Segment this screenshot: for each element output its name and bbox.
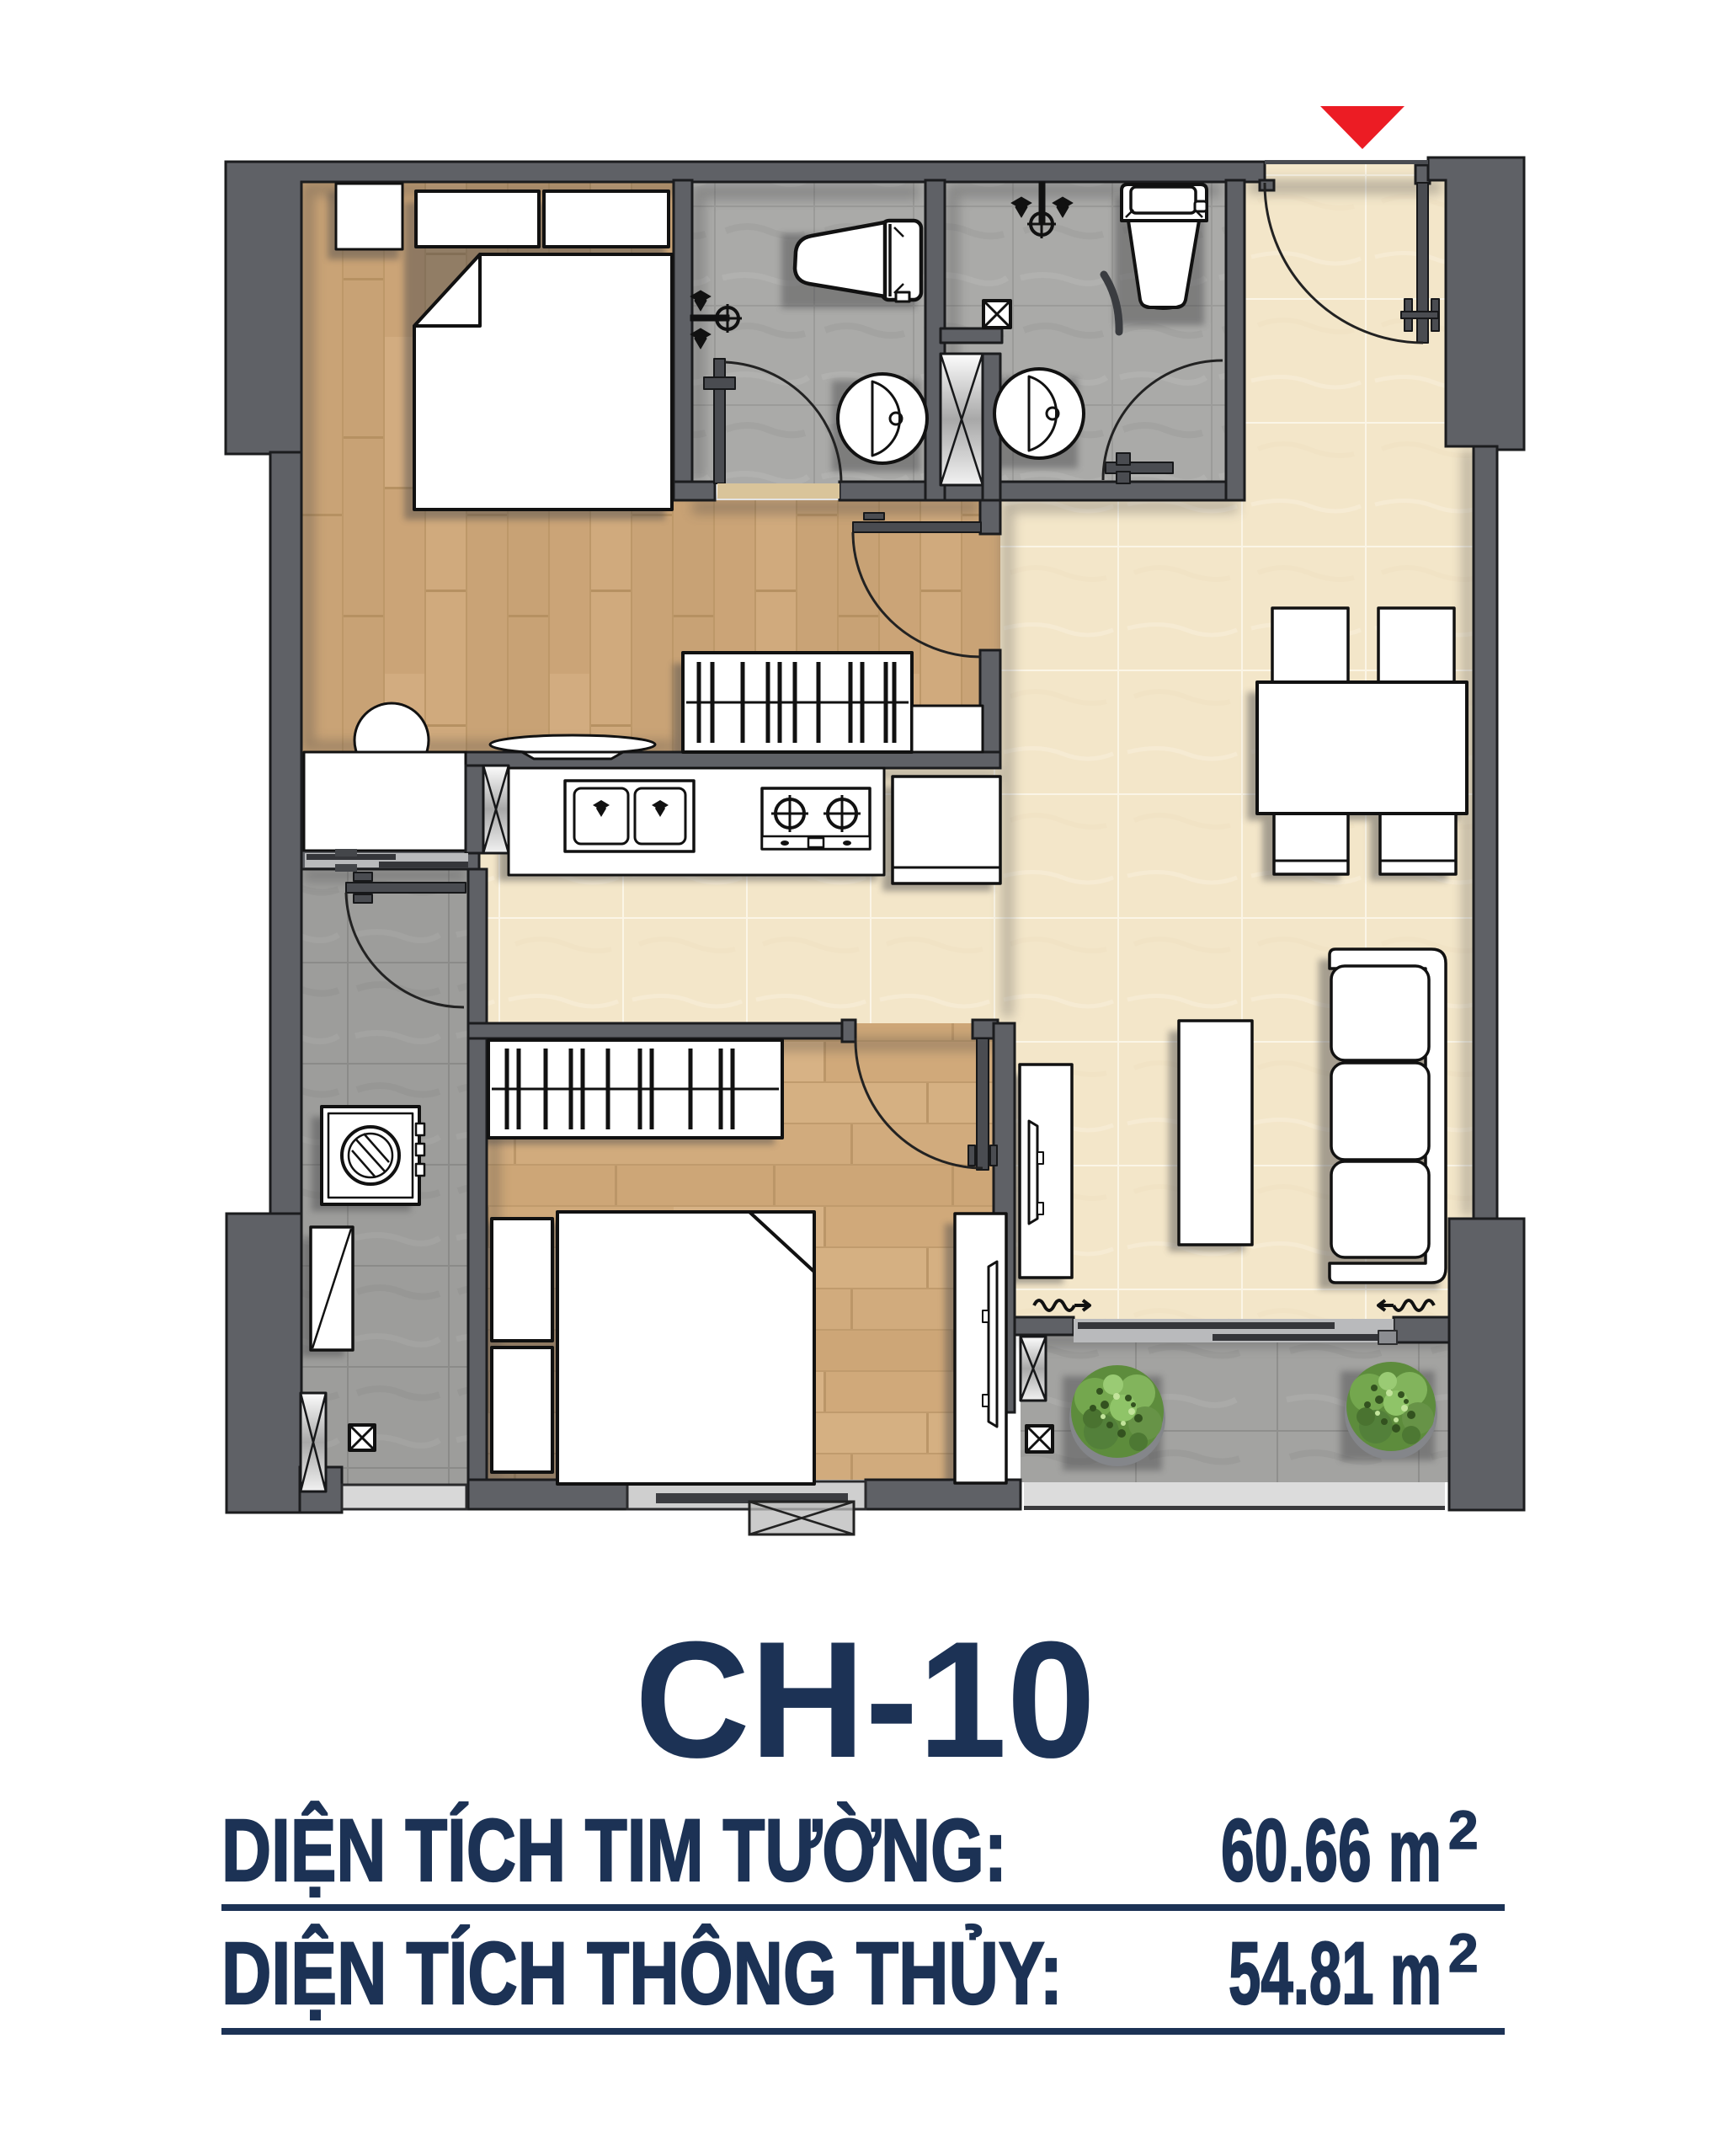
svg-text:54.81 m: 54.81 m [1229, 1924, 1442, 2023]
svg-text:DIỆN TÍCH TIM TƯỜNG:: DIỆN TÍCH TIM TƯỜNG: [221, 1801, 1007, 1900]
svg-text:60.66 m: 60.66 m [1221, 1801, 1442, 1900]
svg-text:DIỆN TÍCH THÔNG THỦY:: DIỆN TÍCH THÔNG THỦY: [221, 1924, 1063, 2023]
svg-text:2: 2 [1448, 1800, 1479, 1860]
svg-text:CH-10: CH-10 [635, 1607, 1095, 1792]
svg-text:2: 2 [1448, 1923, 1479, 1983]
